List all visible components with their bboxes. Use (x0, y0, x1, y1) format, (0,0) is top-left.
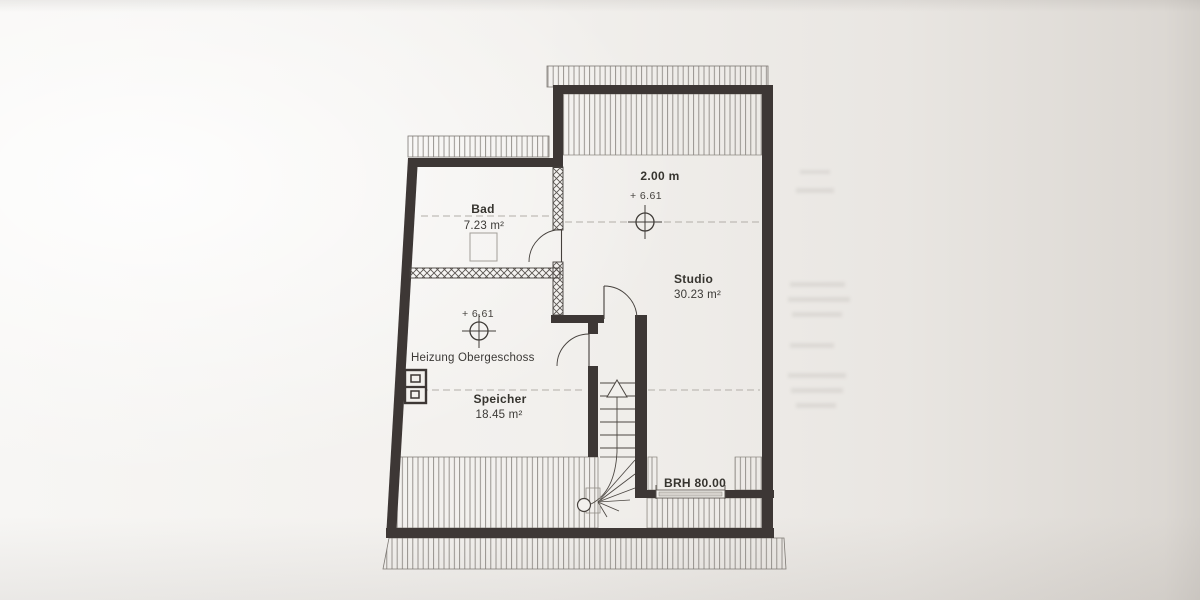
light-partition-walls (410, 167, 563, 315)
level-marker-studio-icon (628, 205, 662, 239)
roof-strip-above-studio (547, 66, 768, 87)
roof-strip-below-window (647, 498, 762, 528)
bleedthrough-text-ghost (788, 170, 850, 408)
room-label-speicher: Speicher (473, 392, 526, 406)
bath-fixture-icon (470, 233, 497, 261)
labels: Bad 7.23 m² 2.00 m + 6.61 Studio 30.23 m… (411, 169, 726, 490)
staircase (578, 380, 636, 517)
partition-bad-bottom (410, 268, 560, 278)
level-label-studio: + 6.61 (630, 190, 662, 202)
speicher-sloped-ceiling-hatch (394, 457, 598, 528)
wall-stair-right (635, 315, 647, 498)
room-label-studio: Studio (674, 272, 713, 286)
roof-strip-below-plan (383, 538, 786, 569)
wall-stair-left-stub (588, 323, 598, 334)
room-area-studio: 30.23 m² (674, 289, 721, 301)
room-area-speicher: 18.45 m² (476, 409, 523, 421)
chimney-block-icon (405, 370, 426, 403)
level-label-speicher: + 6.61 (462, 308, 494, 320)
door-speicher (557, 334, 589, 366)
wall-right (762, 85, 773, 538)
wall-between-bad-and-studio-top (553, 85, 563, 168)
studio-hatch-right-of-window (735, 457, 762, 490)
wall-stair-left (588, 366, 598, 457)
wall-connector-stairhall (551, 315, 604, 323)
room-label-bad: Bad (471, 202, 495, 216)
roof-strip-above-bad (408, 136, 549, 157)
door-studio (604, 286, 637, 319)
floorplan-photo: Bad 7.23 m² 2.00 m + 6.61 Studio 30.23 m… (0, 0, 1200, 600)
partition-bad-right-upper (553, 167, 563, 230)
door-bad (529, 230, 562, 263)
ceiling-height-label: 2.00 m (640, 169, 679, 183)
heizung-label: Heizung Obergeschoss (411, 352, 535, 364)
room-area-bad: 7.23 m² (464, 220, 504, 232)
studio-sloped-ceiling-hatch (563, 94, 762, 155)
wall-studio-top (553, 85, 772, 94)
stair-newel-post-icon (578, 499, 591, 512)
window-sill-label: BRH 80.00 (664, 476, 726, 490)
wall-bottom (386, 528, 774, 538)
doors (529, 230, 637, 367)
floorplan-svg: Bad 7.23 m² 2.00 m + 6.61 Studio 30.23 m… (0, 0, 1200, 600)
wall-bad-top (408, 158, 557, 167)
stair-winder-treads (598, 457, 635, 517)
